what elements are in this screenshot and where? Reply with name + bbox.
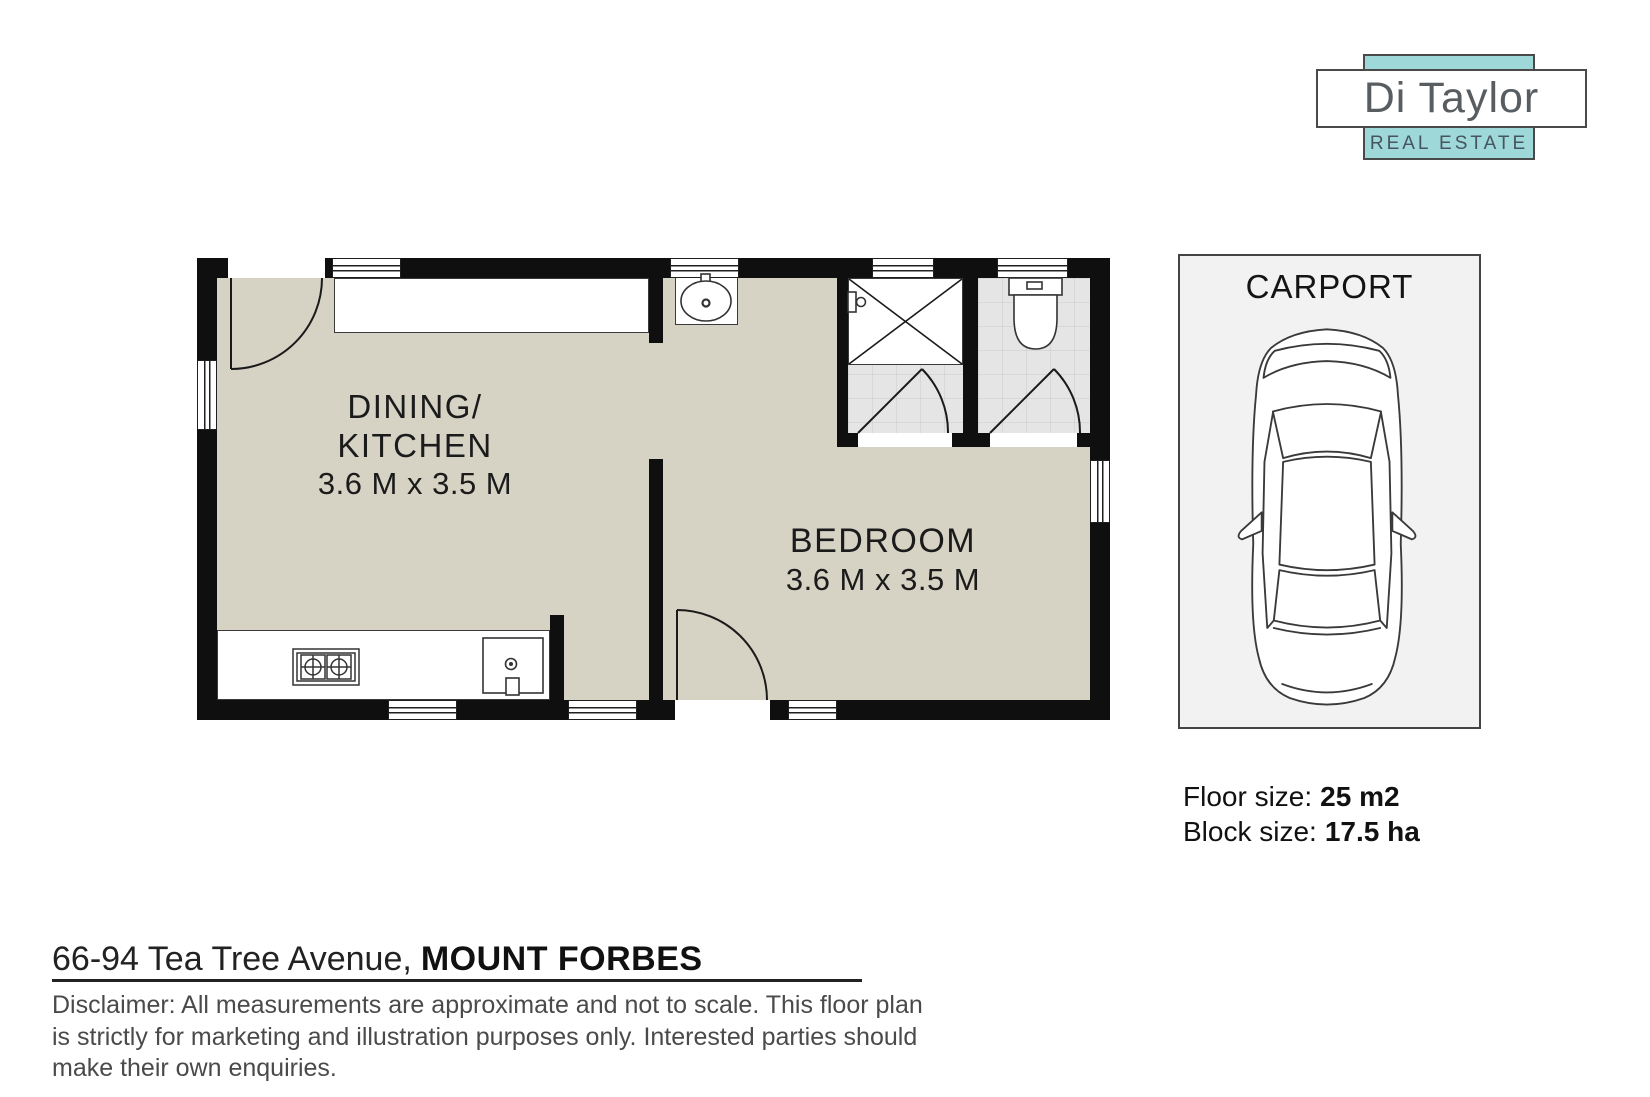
brand-tagline: REAL ESTATE [1370, 133, 1528, 155]
window-bottom-2 [568, 700, 637, 720]
wall-left [197, 258, 217, 720]
wall-bath-bottom-a [837, 433, 858, 447]
wall-counter-return [550, 615, 564, 700]
logo-name-box: Di Taylor [1316, 69, 1587, 128]
bedroom-label: BEDROOM 3.6 M x 3.5 M [731, 521, 1035, 599]
property-address: 66-94 Tea Tree Avenue,MOUNT FORBES [52, 940, 703, 979]
entry-door-opening [228, 258, 325, 278]
window-top-1 [332, 258, 401, 278]
block-size-row: Block size:17.5 ha [1183, 814, 1420, 849]
shower-door-opening [858, 433, 952, 447]
kitchen-top-counter [334, 278, 649, 333]
wall-bath-bottom-c [1077, 433, 1090, 447]
wall-shower-toilet [963, 278, 978, 447]
toilet-door-opening [990, 433, 1077, 447]
address-underline [52, 979, 862, 982]
disclaimer-line: make their own enquiries. [52, 1053, 923, 1085]
wall-shower-left [837, 278, 848, 447]
wall-bottom [197, 700, 1110, 720]
address-locality: MOUNT FORBES [421, 940, 703, 978]
shower-tray [848, 278, 963, 365]
bedroom-door-opening [675, 700, 770, 720]
carport-label: CARPORT [1180, 268, 1479, 306]
room-name: KITCHEN [263, 426, 567, 465]
window-bottom-3 [788, 700, 837, 720]
room-name: DINING/ [263, 387, 567, 426]
property-sizes: Floor size:25 m2 Block size:17.5 ha [1183, 779, 1420, 849]
floor-size-row: Floor size:25 m2 [1183, 779, 1420, 814]
room-dimensions: 3.6 M x 3.5 M [263, 465, 567, 503]
window-bottom-1 [388, 700, 457, 720]
block-size-label: Block size: [1183, 816, 1317, 847]
block-size-value: 17.5 ha [1325, 816, 1420, 847]
window-left [197, 360, 217, 430]
wall-bedroom-left [649, 459, 663, 700]
dining-kitchen-label: DINING/ KITCHEN 3.6 M x 3.5 M [263, 387, 567, 503]
wall-bath-bottom-b [952, 433, 990, 447]
car-top-view-icon [1232, 320, 1422, 712]
room-name: BEDROOM [731, 521, 1035, 561]
floor-size-value: 25 m2 [1320, 781, 1399, 812]
brand-name: Di Taylor [1364, 74, 1539, 123]
vanity-unit [675, 276, 738, 325]
window-top-2 [670, 258, 739, 278]
disclaimer-line: is strictly for marketing and illustrati… [52, 1022, 923, 1054]
address-street: 66-94 Tea Tree Avenue, [52, 940, 412, 978]
disclaimer-text: Disclaimer: All measurements are approxi… [52, 990, 923, 1085]
window-right [1090, 460, 1110, 523]
kitchen-bottom-counter [217, 630, 550, 700]
floorplan: DINING/ KITCHEN 3.6 M x 3.5 M BEDROOM 3.… [197, 258, 1110, 720]
window-top-3 [872, 258, 934, 278]
wall-stub-kitchen-alcove [649, 278, 663, 343]
floor-size-label: Floor size: [1183, 781, 1312, 812]
window-top-4 [997, 258, 1068, 278]
carport-box: CARPORT [1178, 254, 1481, 729]
disclaimer-line: Disclaimer: All measurements are approxi… [52, 990, 923, 1022]
toilet-room-floor [978, 278, 1090, 433]
room-dimensions: 3.6 M x 3.5 M [731, 561, 1035, 599]
logo-tagline-strip: REAL ESTATE [1363, 128, 1535, 160]
